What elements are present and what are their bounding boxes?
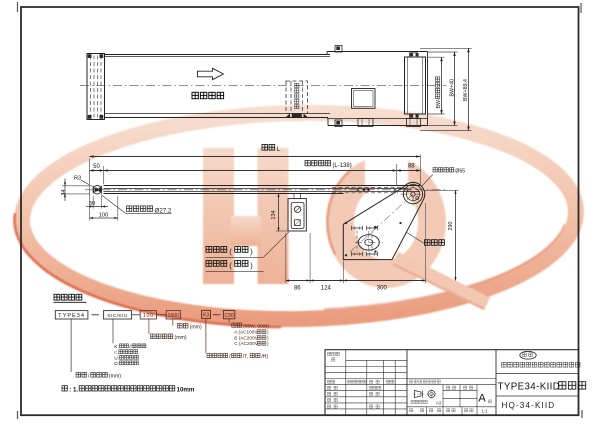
svg-text:/H): /H) xyxy=(261,354,268,360)
svg-text:TYPE34: TYPE34 xyxy=(58,313,85,319)
svg-text:: 1.: : 1. xyxy=(69,386,78,393)
svg-text:(mm): (mm) xyxy=(190,324,202,330)
svg-text:290: 290 xyxy=(448,222,454,231)
svg-text:134: 134 xyxy=(271,211,277,220)
svg-text:K:: K: xyxy=(114,344,119,350)
svg-text:TYPE34-KIID: TYPE34-KIID xyxy=(498,382,561,393)
svg-text:A: A xyxy=(478,393,486,405)
svg-text:1:1: 1:1 xyxy=(481,409,488,414)
svg-text:K3: K3 xyxy=(203,313,209,319)
svg-text:U:: U: xyxy=(114,356,119,362)
svg-text:100: 100 xyxy=(143,313,154,319)
svg-text:C (AC200V: C (AC200V xyxy=(234,341,259,346)
svg-text:A3: A3 xyxy=(436,400,442,405)
svg-text:Ø27.2: Ø27.2 xyxy=(155,207,172,214)
svg-text:L: L xyxy=(277,146,281,153)
svg-text:BW-: BW- xyxy=(436,98,442,108)
svg-text:/T,: /T, xyxy=(243,354,248,360)
svg-text:(L-138): (L-138) xyxy=(332,163,351,169)
svg-text:A (AC100V: A (AC100V xyxy=(234,330,258,335)
svg-text:124: 124 xyxy=(321,285,332,291)
svg-text:50: 50 xyxy=(93,164,100,170)
svg-text:34: 34 xyxy=(61,190,67,196)
svg-text:100: 100 xyxy=(99,212,109,218)
svg-text:10mm: 10mm xyxy=(177,386,195,393)
svg-text:KIC/KIU: KIC/KIU xyxy=(108,313,128,319)
svg-text:(mm): (mm) xyxy=(109,373,121,379)
svg-text:86: 86 xyxy=(294,285,301,291)
svg-text:88: 88 xyxy=(408,163,415,169)
svg-text:): ) xyxy=(250,261,252,270)
svg-text:I:: I: xyxy=(114,350,117,356)
svg-text:): ) xyxy=(250,247,252,256)
svg-text:R3: R3 xyxy=(74,176,81,182)
svg-text:BW+40: BW+40 xyxy=(450,79,456,97)
svg-text:BW+89.4: BW+89.4 xyxy=(463,79,469,101)
svg-text:1500: 1500 xyxy=(168,313,180,319)
svg-text:B (AC200V: B (AC200V xyxy=(234,335,258,340)
svg-text:HQ-34-KIID: HQ-34-KIID xyxy=(502,401,556,410)
svg-text:D:: D: xyxy=(114,361,119,367)
svg-text:C90: C90 xyxy=(225,313,234,319)
svg-text:(mm): (mm) xyxy=(175,335,187,341)
svg-text:Ø65: Ø65 xyxy=(455,169,465,175)
svg-text:300: 300 xyxy=(377,285,388,291)
